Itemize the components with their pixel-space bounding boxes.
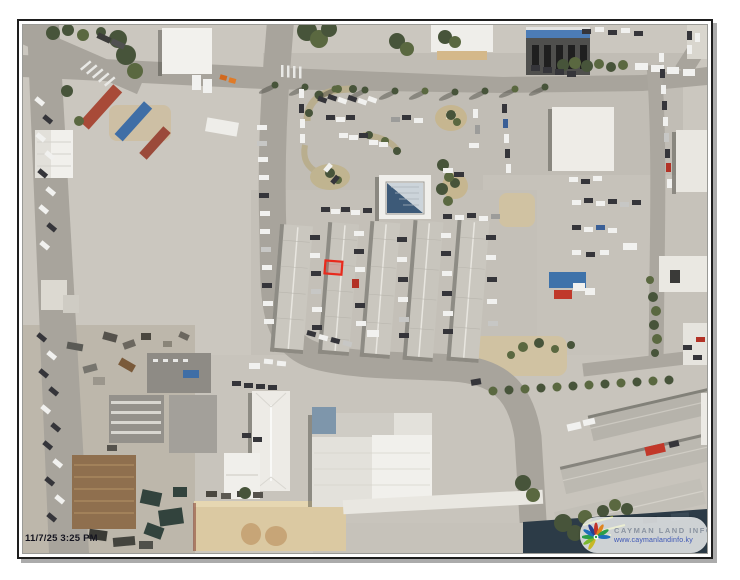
starburst-logo-icon: [582, 518, 614, 552]
aerial-photo-canvas[interactable]: .cw{fill:#f1f1ef}.cd{fill:#35353a}.cg{fi…: [23, 25, 707, 553]
logo-url: www.caymanlandinfo.ky: [614, 537, 707, 544]
sand-lot: [193, 501, 346, 551]
logo-title: CAYMAN LAND INFO: [614, 526, 707, 535]
attribution-logo: CAYMAN LAND INFO www.caymanlandinfo.ky: [580, 517, 707, 553]
page: .cw{fill:#f1f1ef}.cd{fill:#35353a}.cg{fi…: [0, 0, 740, 580]
timestamp-overlay: 11/7/25 3:25 PM: [25, 533, 98, 544]
highlighted-parcel[interactable]: [324, 260, 342, 274]
aerial-scene: .cw{fill:#f1f1ef}.cd{fill:#35353a}.cg{fi…: [23, 25, 707, 553]
aerial-photo-frame: .cw{fill:#f1f1ef}.cd{fill:#35353a}.cg{fi…: [17, 19, 713, 559]
warehouse-rows: [270, 219, 489, 363]
